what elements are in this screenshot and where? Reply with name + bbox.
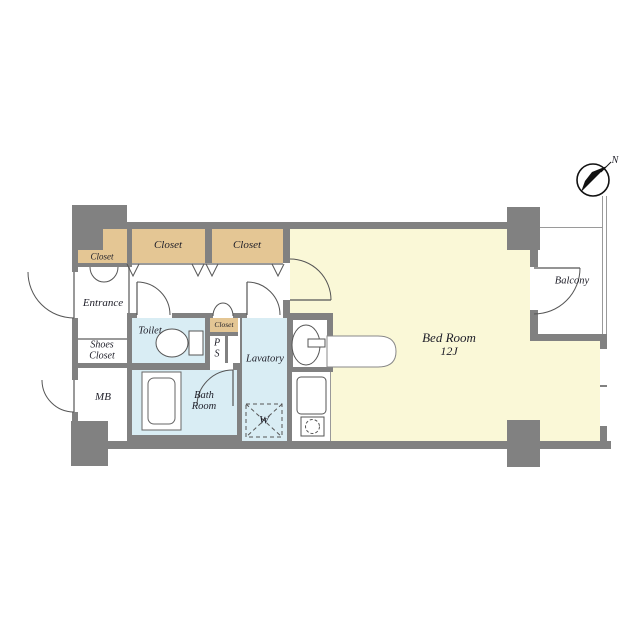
entrance-door-arc [28, 272, 74, 318]
door-opening-bedroom [283, 263, 290, 300]
wall-toilet-right [205, 318, 210, 363]
wall-below-entrance-closet [72, 263, 132, 267]
bedroom-extension-area [530, 341, 600, 441]
label-entrance-closet: Closet [90, 252, 113, 261]
entrance-closet-area [103, 228, 127, 250]
wall-kitchen-left [287, 372, 292, 441]
label-compass-north: N [612, 156, 619, 167]
label-entrance: Entrance [83, 298, 123, 310]
label-lavatory: Lavatory [246, 353, 284, 364]
floor-plan: Closet Closet Closet Entrance ShoesClose… [0, 0, 640, 640]
balcony-railing-line [602, 196, 603, 334]
label-closet-1: Closet [154, 240, 182, 252]
wall-nook-right [327, 320, 333, 337]
wall-closet1-left [127, 222, 132, 263]
wall-ps-right [240, 318, 242, 363]
label-closet-2: Closet [233, 240, 261, 252]
wall-shoes-toilet [127, 318, 132, 363]
kitchen-area [292, 372, 331, 441]
wall-bath-left [127, 368, 132, 441]
label-shoes-closet: ShoesCloset [89, 341, 115, 362]
wall-bedroom-left-upper [283, 222, 290, 263]
label-balcony: Balcony [555, 275, 589, 286]
label-ps: PS [214, 339, 220, 360]
pillar-top-left [72, 205, 103, 250]
compass-needle-tail [601, 162, 611, 172]
washbasin-nook-area [293, 320, 327, 367]
compass-needle [581, 166, 607, 192]
wall-closet-mid-bottom [210, 332, 238, 336]
door-opening-bath [210, 363, 233, 370]
wall-ps-divider [225, 336, 228, 363]
pillar-top-left [103, 205, 127, 228]
balcony-edge-line [540, 227, 602, 228]
window-bedroom-right [600, 348, 607, 427]
label-bedroom: Bed Room12J [422, 331, 476, 357]
wall-bath-lavatory [237, 370, 242, 441]
wall-nook-left [287, 320, 293, 372]
pillar-bottom-right [507, 420, 540, 467]
label-toilet: Toilet [138, 325, 162, 336]
balcony-railing-line [606, 196, 607, 334]
label-bath-room: BathRoom [192, 390, 217, 412]
bathroom-area [132, 370, 237, 435]
wall-notch [108, 421, 127, 443]
entrance-step-line [128, 267, 130, 318]
wall-balcony-bottom [533, 334, 607, 341]
pipe-space-area-2 [228, 336, 240, 363]
wall-nook-bottom [287, 367, 333, 372]
door-opening-balcony [530, 267, 538, 310]
pillar-top-right [507, 207, 540, 250]
wall-nook-top [287, 313, 333, 320]
door-opening-mb [72, 380, 78, 412]
wall-top [103, 222, 507, 229]
door-opening-lavatory [247, 313, 283, 318]
label-washer: W [259, 414, 269, 427]
wall-bath-bottom [127, 435, 242, 441]
door-opening-closet-mid [213, 313, 233, 318]
wall-closet-divider [205, 222, 212, 263]
label-closet-mid: Closet [214, 321, 233, 329]
door-opening-toilet [137, 313, 172, 318]
hallway-area [130, 263, 283, 313]
closet-front-line [132, 263, 283, 265]
door-opening-entrance [72, 272, 78, 318]
label-mb: MB [95, 392, 111, 404]
compass-circle [577, 164, 609, 196]
mb-door-arc [42, 380, 74, 412]
wall-shoes-mb [78, 363, 132, 368]
window-tick [600, 385, 607, 387]
